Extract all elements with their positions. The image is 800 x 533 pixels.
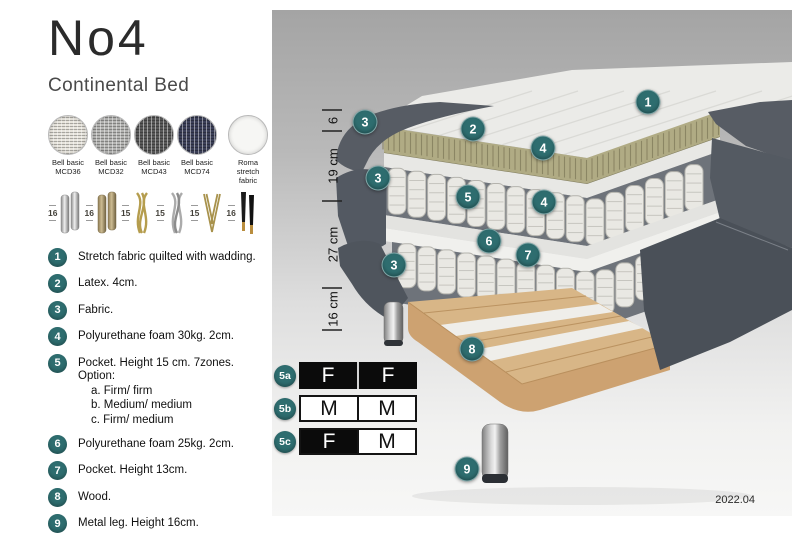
feature-text: Polyurethane foam 25kg. 2cm. (78, 435, 234, 452)
feature-number-badge: 8 (48, 488, 67, 507)
fabric-swatch-label: Bell basicMCD36 (48, 158, 88, 177)
feature-item: 6Polyurethane foam 25kg. 2cm. (48, 435, 270, 454)
feature-number-badge: 6 (48, 435, 67, 454)
leg-option: 16 (226, 190, 258, 236)
firmness-options: 5aFF5bMM5cFM (274, 362, 417, 461)
cylinder-chrome-icon (58, 190, 82, 236)
feature-number-badge: 2 (48, 274, 67, 293)
firmness-cell: F (299, 362, 357, 389)
fabric-swatch-row: Bell basicMCD36Bell basicMCD32Bell basic… (48, 115, 270, 186)
firmness-cell: M (301, 397, 357, 420)
feature-number-badge: 3 (48, 301, 67, 320)
leg-height-label: 15 (121, 203, 130, 223)
metal-leg-front (482, 424, 508, 483)
feature-option-list: a. Firm/ firmb. Medium/ mediumc. Firm/ m… (78, 384, 270, 428)
firmness-row-5a: 5aFF (274, 362, 417, 389)
fabric-swatch-circle (91, 115, 131, 155)
taper-black-gold-icon (237, 190, 259, 236)
firmness-bar: FF (299, 362, 417, 389)
feature-text: Wood. (78, 488, 111, 505)
feature-number-badge: 7 (48, 461, 67, 480)
feature-item: 8Wood. (48, 488, 270, 507)
feature-item: 1Stretch fabric quilted with wadding. (48, 248, 270, 267)
dimension-label: 19 cm (326, 148, 341, 183)
feature-number-badge: 1 (48, 248, 67, 267)
leg-option: 15 (121, 190, 153, 236)
feature-item: 5Pocket. Height 15 cm. 7zones. Option:a.… (48, 354, 270, 428)
leg-height-label: 16 (84, 203, 93, 223)
leg-height-label: 16 (226, 203, 235, 223)
leg-option: 15 (155, 190, 187, 236)
feature-text: Fabric. (78, 301, 113, 318)
metal-leg-back (384, 302, 403, 346)
feature-text: Stretch fabric quilted with wadding. (78, 248, 256, 265)
twist-silver-icon (166, 190, 188, 236)
fabric-swatch: Bell basicMCD74 (177, 115, 217, 177)
spec-column: No4 Continental Bed Bell basicMCD36Bell … (48, 12, 270, 533)
product-title: No4 (48, 12, 270, 65)
firmness-row-5c: 5cFM (274, 428, 417, 455)
feature-item: 4Polyurethane foam 30kg. 2cm. (48, 327, 270, 346)
fabric-swatch: Bell basicMCD43 (134, 115, 174, 177)
fabric-swatch-label: Bell basicMCD74 (177, 158, 217, 177)
floor-shadow (412, 487, 752, 505)
fabric-swatch-circle (134, 115, 174, 155)
firmness-cell: F (357, 362, 417, 389)
feature-text: Metal leg. Height 16cm. (78, 514, 199, 531)
feature-item: 3Fabric. (48, 301, 270, 320)
feature-text: Pocket. Height 13cm. (78, 461, 187, 478)
leg-height-label: 15 (190, 203, 199, 223)
dimension-label: 16 cm (326, 291, 341, 326)
spec-sheet-page: No4 Continental Bed Bell basicMCD36Bell … (0, 0, 800, 533)
firmness-badge: 5a (274, 365, 296, 387)
firmness-cell: F (301, 430, 357, 453)
feature-list: 1Stretch fabric quilted with wadding.2La… (48, 248, 270, 533)
bed-diagram-panel: 619 cm27 cm16 cm 123345436789 5aFF5bMM5c… (272, 10, 792, 516)
dimension-label: 6 (326, 117, 341, 124)
feature-item: 7Pocket. Height 13cm. (48, 461, 270, 480)
feature-text: Pocket. Height 15 cm. 7zones. Option: (78, 354, 270, 384)
feature-item: 9Metal leg. Height 16cm. (48, 514, 270, 533)
version-label: 2022.04 (715, 494, 755, 506)
feature-option: b. Medium/ medium (91, 398, 270, 413)
fabric-swatch: Bell basicMCD36 (48, 115, 88, 177)
firmness-bar: MM (299, 395, 417, 422)
firmness-badge: 5c (274, 431, 296, 453)
firmness-bar: FM (299, 428, 417, 455)
feature-text: Latex. 4cm. (78, 274, 137, 291)
feature-text: Polyurethane foam 30kg. 2cm. (78, 327, 234, 344)
product-subtitle: Continental Bed (48, 75, 270, 97)
leg-options-row: 161615151516 (48, 190, 270, 236)
leg-height-label: 15 (155, 203, 164, 223)
feature-number-badge: 4 (48, 327, 67, 346)
leg-height-label: 16 (48, 203, 57, 223)
feature-option: c. Firm/ medium (91, 413, 270, 428)
leg-option: 16 (48, 190, 82, 236)
feature-option: a. Firm/ firm (91, 384, 270, 399)
firmness-cell: M (357, 397, 415, 420)
dimension-ruler: 619 cm27 cm16 cm (322, 110, 342, 330)
fabric-swatch-circle (228, 115, 268, 155)
fabric-swatch-label: Bell basicMCD43 (134, 158, 174, 177)
cylinder-bronze-icon (95, 190, 119, 236)
fabric-swatch-label: Bell basicMCD32 (91, 158, 131, 177)
fabric-cover-middle-left (336, 169, 386, 250)
hairpin-gold-icon (200, 190, 224, 236)
fabric-swatch-circle (48, 115, 88, 155)
dimension-label: 27 cm (326, 227, 341, 262)
firmness-row-5b: 5bMM (274, 395, 417, 422)
fabric-swatch-label: Romastretch fabric (228, 158, 268, 186)
fabric-swatch: Bell basicMCD32 (91, 115, 131, 177)
fabric-swatch-circle (177, 115, 217, 155)
feature-item: 2Latex. 4cm. (48, 274, 270, 293)
leg-option: 16 (84, 190, 118, 236)
firmness-cell: M (357, 430, 415, 453)
feature-number-badge: 5 (48, 354, 67, 373)
leg-option: 15 (190, 190, 224, 236)
twist-gold-icon (131, 190, 153, 236)
fabric-swatch: Romastretch fabric (228, 115, 268, 186)
firmness-badge: 5b (274, 398, 296, 420)
feature-number-badge: 9 (48, 514, 67, 533)
